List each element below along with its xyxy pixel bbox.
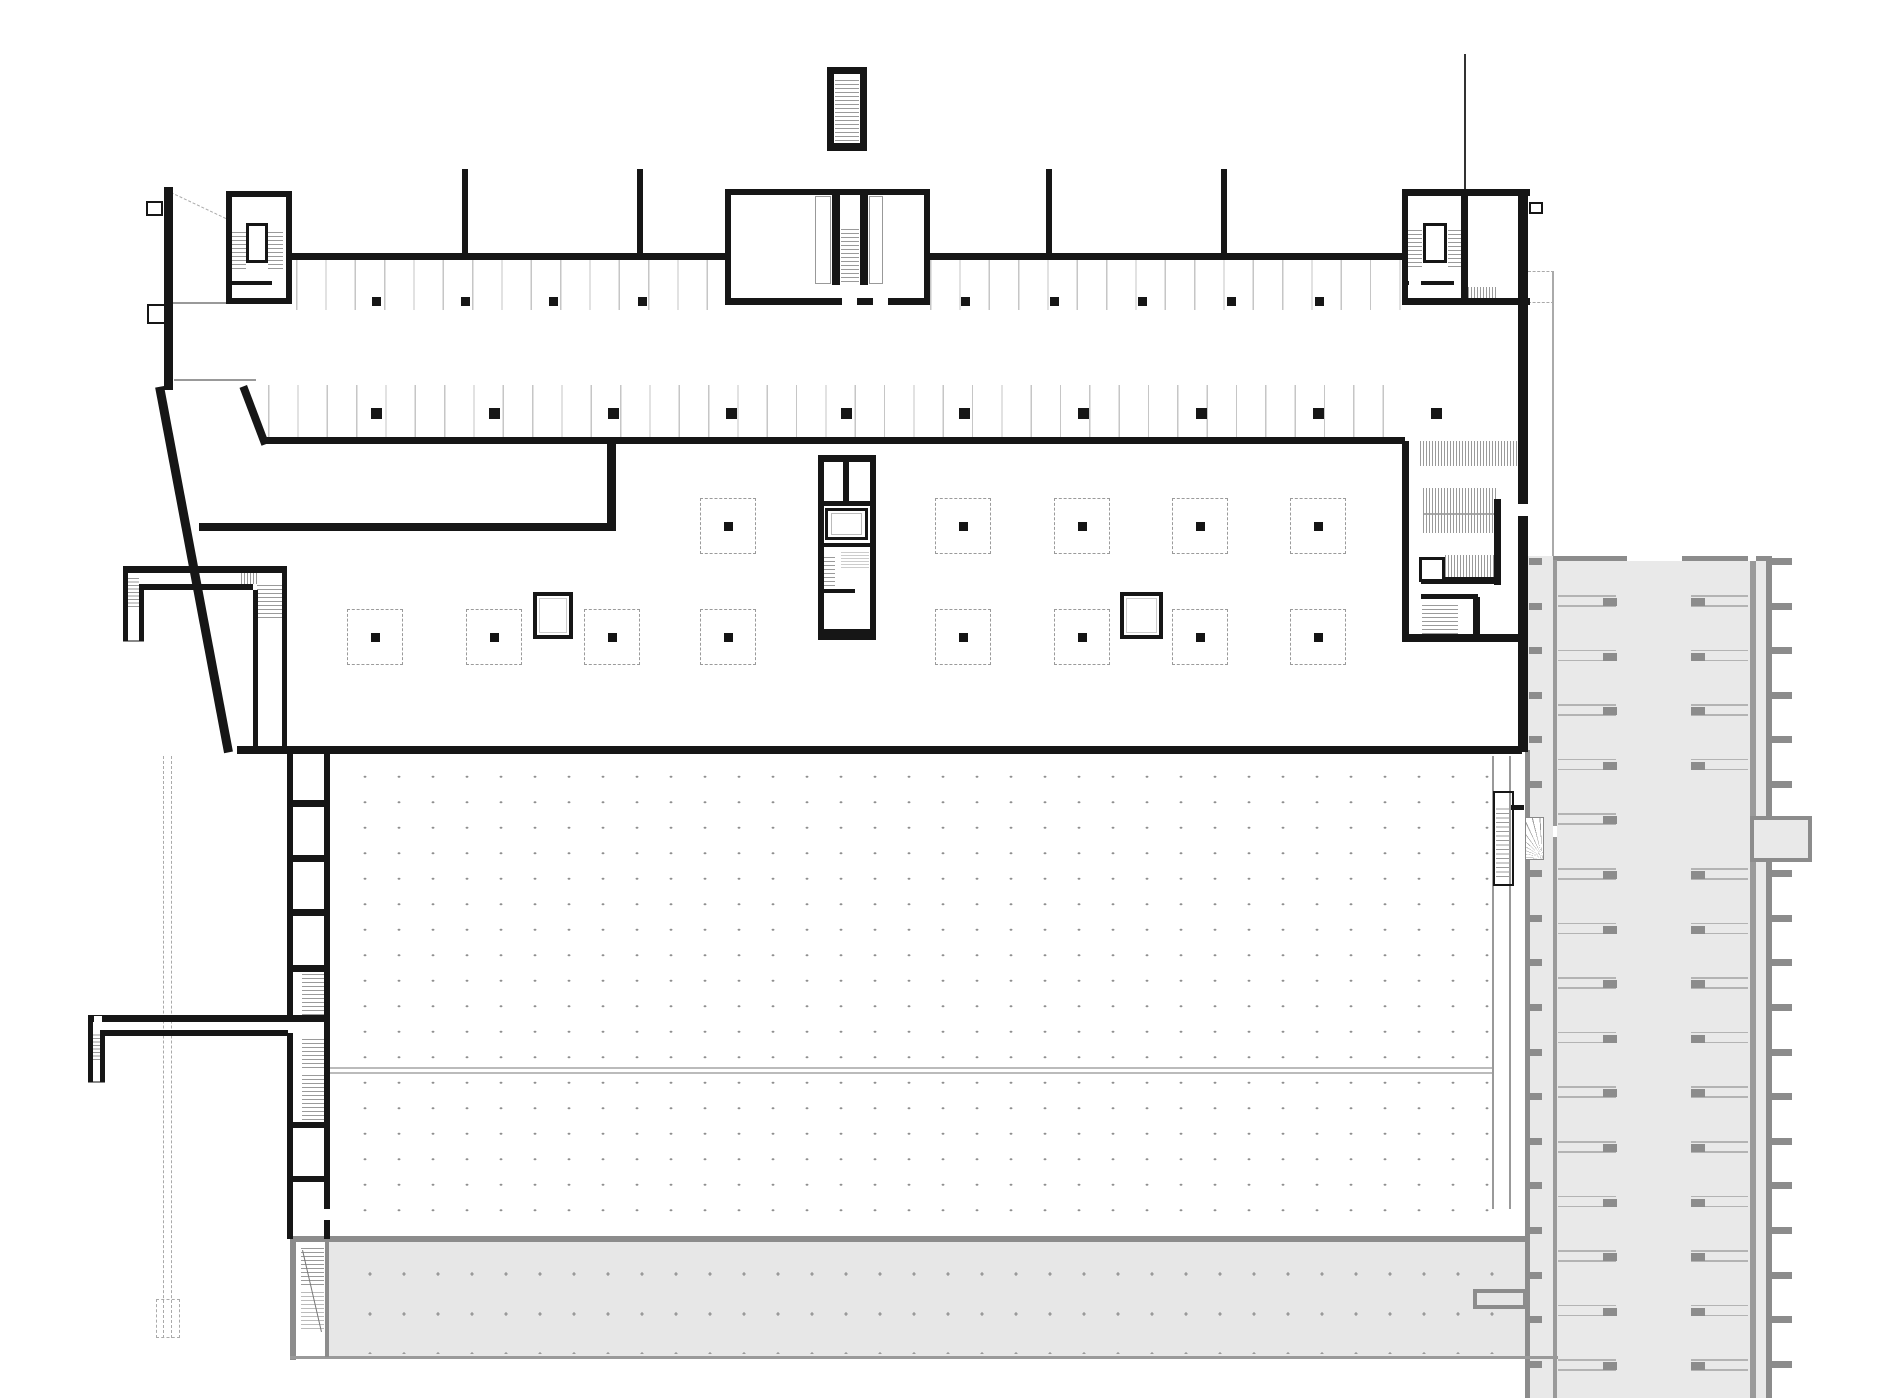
strip-tab: [1529, 959, 1542, 966]
strip-column: [1603, 707, 1617, 715]
strip-inner-wall: [1553, 560, 1557, 1398]
wall-segment: [725, 189, 930, 195]
wall-segment: [282, 573, 287, 748]
column-grid-dot: [608, 633, 617, 642]
strip-column: [1691, 1362, 1705, 1370]
strip-tab: [1772, 1093, 1792, 1100]
stair-treads: [1422, 602, 1458, 634]
thin-line: [1464, 54, 1466, 189]
parking-column: [461, 297, 470, 306]
stair-treads: [835, 77, 859, 141]
parking-row-2: [268, 385, 1405, 437]
parking-column: [1196, 408, 1207, 419]
column-grid-dot: [1314, 522, 1323, 531]
dashed-diagonal: [171, 192, 226, 219]
wall-segment: [823, 543, 870, 547]
column-grid-dot: [371, 633, 380, 642]
strip-tab: [1529, 1227, 1542, 1234]
strip-column: [1603, 762, 1617, 770]
wall-segment: [88, 1015, 93, 1082]
fan-stair: [1525, 817, 1544, 860]
hidden-edge: [163, 756, 164, 1338]
strip-tab: [1772, 781, 1792, 788]
strip-stall-line: [1558, 704, 1616, 706]
strip-stall-line: [1691, 1141, 1748, 1143]
door-opening: [855, 589, 870, 593]
strip-stall-line: [1691, 868, 1748, 870]
cab-liner: [831, 513, 862, 535]
ramp-hatch: [1420, 441, 1518, 466]
strip-tab: [1529, 1361, 1542, 1368]
strip-tab: [1529, 1138, 1542, 1145]
strip-column: [1603, 1035, 1617, 1043]
strip-column: [1691, 871, 1705, 879]
strip-column: [1691, 1199, 1705, 1207]
wall-segment: [226, 191, 292, 197]
stair-treads: [1448, 229, 1461, 267]
strip-column: [1603, 1089, 1617, 1097]
column-grid-dot: [959, 522, 968, 531]
band-inner-wall: [325, 1241, 329, 1357]
strip-tab: [1772, 558, 1792, 565]
thin-line: [174, 379, 256, 381]
strip-tab: [1772, 870, 1792, 877]
elevator-cab: [1423, 223, 1447, 263]
stair-treads: [302, 972, 325, 1015]
door-tab: [1529, 202, 1543, 214]
strip-tab: [1772, 692, 1792, 699]
strip-stall-line: [1558, 1086, 1616, 1088]
band-dot-grid: [345, 1246, 1495, 1354]
parking-column: [638, 297, 647, 306]
dotted-line: [1528, 302, 1554, 303]
stair-treads: [241, 573, 257, 584]
strip-stall-line: [1558, 923, 1616, 925]
wall-segment: [1402, 634, 1528, 642]
strip-stall-line: [1558, 1141, 1616, 1143]
strip-stall-line: [1691, 1359, 1748, 1361]
strip-tab: [1772, 959, 1792, 966]
strip-stall-line: [1691, 704, 1748, 706]
parking-column: [959, 408, 970, 419]
wall-segment: [1473, 597, 1480, 637]
wall-segment: [725, 298, 930, 305]
parking-column: [961, 297, 970, 306]
hidden-edge: [171, 756, 172, 1338]
wall-segment: [832, 195, 840, 285]
strip-tab: [1772, 1138, 1792, 1145]
wall-segment: [287, 1033, 293, 1239]
parking-column: [549, 297, 558, 306]
wall-segment: [1518, 189, 1528, 752]
wall-segment: [139, 584, 253, 590]
wall-segment: [226, 191, 232, 304]
wall-segment: [725, 189, 731, 305]
strip-tab: [1529, 1316, 1542, 1323]
strip-tab: [1772, 1316, 1792, 1323]
wall-segment: [292, 253, 726, 260]
strip-stall-line: [1558, 1359, 1616, 1361]
strip-stall-line: [1691, 595, 1748, 597]
wall-segment: [1046, 169, 1052, 256]
wall-segment: [870, 455, 876, 640]
wall-segment: [818, 629, 876, 640]
parking-column: [1050, 297, 1059, 306]
strip-tab: [1529, 870, 1542, 877]
wall-segment: [287, 800, 330, 807]
wall-segment: [88, 1015, 288, 1022]
parking-column: [1431, 408, 1442, 419]
floor-plan: [0, 0, 1880, 1398]
thin-line: [330, 1067, 1494, 1069]
elevator-cab: [1419, 557, 1445, 582]
wall-segment: [827, 67, 834, 151]
wall-segment: [1221, 169, 1227, 256]
thin-line: [172, 302, 226, 304]
column-grid-dot: [959, 633, 968, 642]
strip-tab: [1772, 1182, 1792, 1189]
door-opening: [1409, 281, 1421, 285]
parking-column: [608, 408, 619, 419]
wall-segment: [823, 501, 870, 506]
wall-segment: [226, 298, 292, 304]
wall-segment: [100, 1030, 105, 1082]
strip-column: [1603, 1308, 1617, 1316]
hidden-pit: [156, 1299, 180, 1338]
strip-bump-out: [1750, 816, 1812, 862]
wall-segment: [199, 523, 614, 531]
wall-segment: [286, 191, 292, 304]
strip-tab: [1772, 603, 1792, 610]
strip-column: [1691, 1253, 1705, 1261]
strip-column: [1691, 1308, 1705, 1316]
wall-segment: [287, 909, 330, 916]
strip-column: [1603, 980, 1617, 988]
strip-column: [1691, 926, 1705, 934]
strip-tab: [1529, 781, 1542, 788]
stair-treads: [841, 226, 859, 282]
wall-segment: [253, 590, 258, 748]
strip-column: [1603, 598, 1617, 606]
wall-segment: [287, 965, 330, 972]
wall-segment: [164, 187, 173, 390]
strip-column: [1691, 1144, 1705, 1152]
strip-tab: [1529, 1049, 1542, 1056]
strip-tab: [1772, 1227, 1792, 1234]
strip-column: [1603, 816, 1617, 824]
dotted-line: [1528, 271, 1554, 272]
wall-segment: [139, 590, 144, 641]
strip-tab: [1772, 736, 1792, 743]
wall-segment: [237, 746, 1522, 754]
parking-column: [489, 408, 500, 419]
wall-segment: [287, 1015, 330, 1022]
door-opening: [94, 1016, 102, 1022]
strip-column: [1603, 653, 1617, 661]
wall-segment: [324, 746, 330, 1209]
shaft-liner: [815, 196, 831, 284]
band-left-wall: [290, 1236, 296, 1360]
wall-segment: [287, 1122, 330, 1128]
wall-segment: [287, 746, 293, 1022]
strip-stall-line: [1558, 1250, 1616, 1252]
strip-tab: [1772, 915, 1792, 922]
wall-segment: [227, 281, 276, 285]
strip-stall-line: [1558, 595, 1616, 597]
stair-treads: [301, 1247, 324, 1285]
strip-stall-line: [1691, 923, 1748, 925]
wall-segment: [1402, 189, 1408, 305]
wall-segment: [287, 1176, 330, 1182]
wall-segment: [1461, 189, 1468, 305]
strip-stall-line: [1558, 759, 1616, 761]
strip-stall-line: [1691, 650, 1748, 652]
stair-treads: [128, 577, 139, 607]
strip-tab: [1529, 647, 1542, 654]
stair-treads: [268, 229, 283, 269]
strip-tab: [1529, 692, 1542, 699]
wall-segment: [607, 443, 616, 531]
band-top-wall: [290, 1236, 1527, 1242]
strip-stall-line: [1558, 813, 1616, 815]
wall-segment: [123, 573, 128, 641]
parking-column: [841, 408, 852, 419]
strip-stall-line: [1558, 868, 1616, 870]
parking-column: [1078, 408, 1089, 419]
ramp-hatch: [1423, 488, 1497, 533]
strip-stall-line: [1691, 1305, 1748, 1307]
wall-segment: [105, 1030, 288, 1036]
strip-tab: [1529, 603, 1542, 610]
wall-segment: [843, 460, 849, 504]
column-grid-dot: [1196, 633, 1205, 642]
column-grid-dot: [724, 633, 733, 642]
strip-tab: [1529, 1004, 1542, 1011]
column-liner: [539, 598, 567, 633]
stair-treads: [302, 1074, 325, 1120]
wall-segment: [924, 189, 930, 305]
parking-column: [371, 408, 382, 419]
wall-segment: [287, 855, 330, 862]
strip-column: [1691, 762, 1705, 770]
column-grid-dot: [490, 633, 499, 642]
strip-column: [1691, 1035, 1705, 1043]
strip-tab: [1529, 1182, 1542, 1189]
wall-segment: [1494, 499, 1501, 585]
hall-column-dot-grid: [340, 756, 1490, 1230]
parking-column: [1313, 408, 1324, 419]
strip-tab: [1529, 558, 1542, 565]
wall-segment: [928, 253, 1402, 260]
band-room: [1473, 1289, 1527, 1309]
column-grid-dot: [1078, 633, 1087, 642]
wall-segment: [324, 1220, 330, 1239]
strip-stall-line: [1558, 977, 1616, 979]
parking-column: [1138, 297, 1147, 306]
strip-column: [1691, 707, 1705, 715]
wall-segment: [818, 455, 824, 640]
strip-tab: [1772, 1272, 1792, 1279]
strip-stall-line: [1558, 1032, 1616, 1034]
wall-segment: [265, 437, 1405, 444]
window-tab: [146, 201, 163, 216]
wall-segment: [1402, 441, 1409, 642]
strip-column: [1603, 871, 1617, 879]
strip-top-gap: [1748, 556, 1756, 561]
strip-tab: [1772, 1049, 1792, 1056]
strip-stall-line: [1691, 977, 1748, 979]
door-opening: [1518, 504, 1528, 516]
strip-stall-line: [1558, 1196, 1616, 1198]
column-liner: [1126, 598, 1157, 633]
strip-column: [1691, 1089, 1705, 1097]
hall-side-stair: [1493, 791, 1514, 886]
strip-column: [1691, 653, 1705, 661]
door-opening: [873, 298, 888, 305]
window-tab: [147, 304, 166, 324]
strip-tab: [1772, 647, 1792, 654]
door-opening: [1553, 826, 1557, 837]
door-opening: [272, 281, 284, 285]
strip-top-gap: [1627, 556, 1682, 561]
stair-treads-hidden: [841, 551, 869, 568]
door-opening: [842, 298, 857, 305]
parking-column: [726, 408, 737, 419]
strip-tab: [1529, 1272, 1542, 1279]
strip-column: [1603, 1253, 1617, 1261]
strip-stall-line: [1691, 1196, 1748, 1198]
strip-tab: [1529, 915, 1542, 922]
strip-stall-line: [1691, 1250, 1748, 1252]
parking-column: [372, 297, 381, 306]
wall-segment: [860, 67, 867, 151]
column-grid-dot: [1196, 522, 1205, 531]
wall-segment: [1421, 594, 1478, 599]
strip-stall-line: [1691, 1086, 1748, 1088]
strip-column: [1603, 1144, 1617, 1152]
strip-stall-line: [1691, 1032, 1748, 1034]
parking-column: [1227, 297, 1236, 306]
strip-aisle-wall: [1750, 560, 1756, 1398]
strip-tab: [1529, 736, 1542, 743]
band-bottom-line: [290, 1356, 1558, 1359]
wall-segment: [860, 195, 868, 285]
column-grid-dot: [1314, 633, 1323, 642]
strip-column: [1603, 1362, 1617, 1370]
wall-segment: [637, 169, 643, 256]
thin-line: [1552, 272, 1554, 556]
strip-tab: [1772, 1004, 1792, 1011]
strip-stall-line: [1558, 1305, 1616, 1307]
strip-column: [1603, 1199, 1617, 1207]
parking-row-1-right: [930, 260, 1402, 310]
parking-row-1-left: [296, 260, 726, 310]
elevator-cab: [246, 223, 268, 263]
column-grid-dot: [1078, 522, 1087, 531]
stair-treads: [302, 1038, 325, 1068]
stair-treads: [231, 229, 246, 269]
stair-treads: [1407, 229, 1422, 267]
strip-column: [1691, 980, 1705, 988]
strip-tab: [1772, 1361, 1792, 1368]
thin-line: [330, 1072, 1494, 1074]
strip-tab: [1529, 1093, 1542, 1100]
strip-stall-line: [1558, 650, 1616, 652]
stair-treads: [257, 584, 282, 618]
strip-column: [1603, 926, 1617, 934]
wall-segment: [123, 566, 287, 573]
shaft-liner: [869, 196, 883, 284]
strip-stall-line: [1691, 759, 1748, 761]
parking-column: [1315, 297, 1324, 306]
wall-segment: [462, 169, 468, 256]
column-grid-dot: [724, 522, 733, 531]
strip-column: [1691, 598, 1705, 606]
